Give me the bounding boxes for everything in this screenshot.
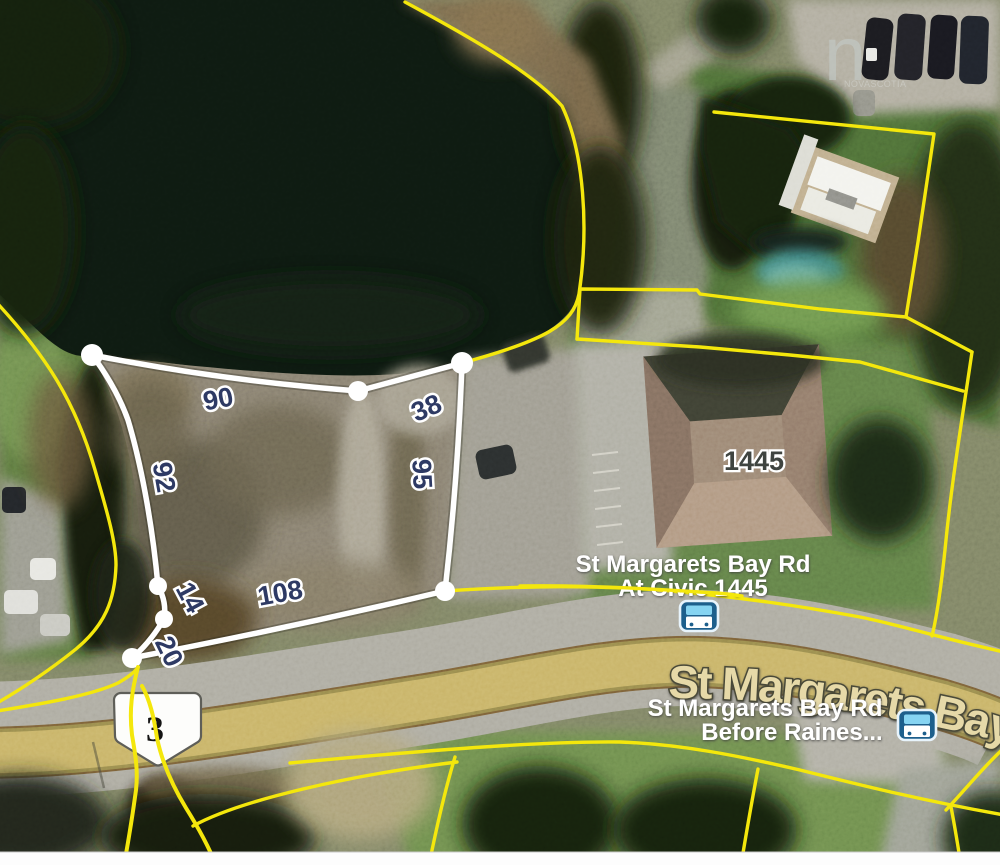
svg-text:95: 95 xyxy=(406,458,438,490)
svg-text:NOVASCOTIA: NOVASCOTIA xyxy=(844,79,906,89)
svg-text:92: 92 xyxy=(147,460,182,495)
svg-text:Before Raines...: Before Raines... xyxy=(701,719,882,746)
svg-text:St Margarets Bay Rd: St Margarets Bay Rd xyxy=(648,695,883,722)
svg-text:1445: 1445 xyxy=(724,446,784,476)
svg-text:St Margarets Bay Rd: St Margarets Bay Rd xyxy=(576,551,811,578)
svg-text:90: 90 xyxy=(201,381,236,416)
